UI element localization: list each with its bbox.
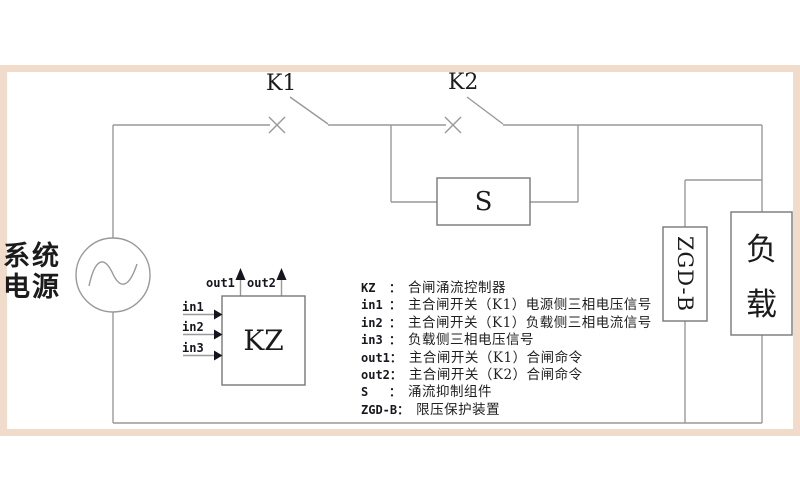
legend-desc: 主合闸开关（K2）合闸命令 bbox=[409, 367, 583, 384]
legend-row-zgd-b: ZGD-B： 限压保护装置 bbox=[361, 402, 652, 419]
legend-colon: ： bbox=[390, 350, 402, 367]
legend-desc: 主合闸开关（K1）负载侧三相电流信号 bbox=[408, 315, 652, 332]
port-out2-label: out2 bbox=[247, 276, 276, 290]
protector-box-label: ZGD-B bbox=[673, 236, 697, 312]
switch-k2-blade bbox=[467, 97, 503, 124]
legend-term: out2 bbox=[361, 367, 390, 384]
sine-wave-icon bbox=[89, 262, 137, 286]
legend-desc: 涌流抑制组件 bbox=[408, 384, 492, 401]
legend-term: in1 bbox=[361, 297, 389, 314]
power-source-label-line1: 系统 bbox=[3, 241, 67, 272]
out2-arrowhead-icon bbox=[277, 268, 287, 280]
legend-row-s: S： 涌流抑制组件 bbox=[361, 384, 652, 401]
legend-term: KZ bbox=[361, 280, 389, 297]
legend-term: in2 bbox=[361, 315, 389, 332]
switch-k2-label: K2 bbox=[448, 70, 478, 95]
legend-row-in1: in1： 主合闸开关（K1）电源侧三相电压信号 bbox=[361, 297, 652, 314]
legend-colon: ： bbox=[390, 367, 402, 384]
out1-arrowhead-icon bbox=[236, 268, 246, 280]
power-source-label: 系统 电源 bbox=[3, 241, 67, 303]
legend-term: out1 bbox=[361, 350, 390, 367]
legend-row-kz: KZ： 合闸涌流控制器 bbox=[361, 280, 652, 297]
switch-k1-label: K1 bbox=[266, 71, 296, 96]
port-out1-label: out1 bbox=[206, 276, 235, 290]
legend-term: ZGD-B bbox=[361, 402, 397, 419]
legend-colon: ： bbox=[389, 297, 401, 314]
load-box: 负 载 bbox=[731, 212, 792, 335]
circuit-diagram-page: 系统 电源 K1 K2 S KZ ZGD-B 负 载 out1 out2 in1… bbox=[0, 0, 800, 500]
legend-row-out1: out1： 主合闸开关（K1）合闸命令 bbox=[361, 350, 652, 367]
legend: KZ： 合闸涌流控制器 in1： 主合闸开关（K1）电源侧三相电压信号 in2：… bbox=[361, 280, 652, 419]
legend-term: S bbox=[361, 384, 389, 401]
legend-desc: 主合闸开关（K1）合闸命令 bbox=[409, 350, 583, 367]
port-in1-label: in1 bbox=[182, 300, 204, 314]
load-label-char1: 负 bbox=[746, 224, 777, 269]
port-in2-label: in2 bbox=[182, 320, 204, 334]
legend-desc: 主合闸开关（K1）电源侧三相电压信号 bbox=[408, 297, 652, 314]
suppressor-box-label: S bbox=[437, 178, 530, 225]
legend-row-in2: in2： 主合闸开关（K1）负载侧三相电流信号 bbox=[361, 315, 652, 332]
legend-term: in3 bbox=[361, 332, 389, 349]
legend-colon: ： bbox=[389, 280, 401, 297]
legend-colon: ： bbox=[389, 332, 401, 349]
load-label-char2: 载 bbox=[746, 279, 777, 324]
legend-colon: ： bbox=[389, 384, 401, 401]
port-in3-label: in3 bbox=[182, 341, 204, 355]
legend-row-out2: out2： 主合闸开关（K2）合闸命令 bbox=[361, 367, 652, 384]
legend-row-in3: in3： 负载侧三相电压信号 bbox=[361, 332, 652, 349]
legend-desc: 限压保护装置 bbox=[416, 402, 500, 419]
controller-box-label: KZ bbox=[222, 296, 305, 385]
legend-desc: 负载侧三相电压信号 bbox=[408, 332, 534, 349]
legend-colon: ： bbox=[389, 315, 401, 332]
legend-desc: 合闸涌流控制器 bbox=[408, 280, 506, 297]
protector-box: ZGD-B bbox=[663, 227, 707, 321]
power-source-label-line2: 电源 bbox=[3, 272, 67, 303]
switch-k1-blade bbox=[290, 97, 328, 124]
legend-colon: ： bbox=[397, 402, 409, 419]
